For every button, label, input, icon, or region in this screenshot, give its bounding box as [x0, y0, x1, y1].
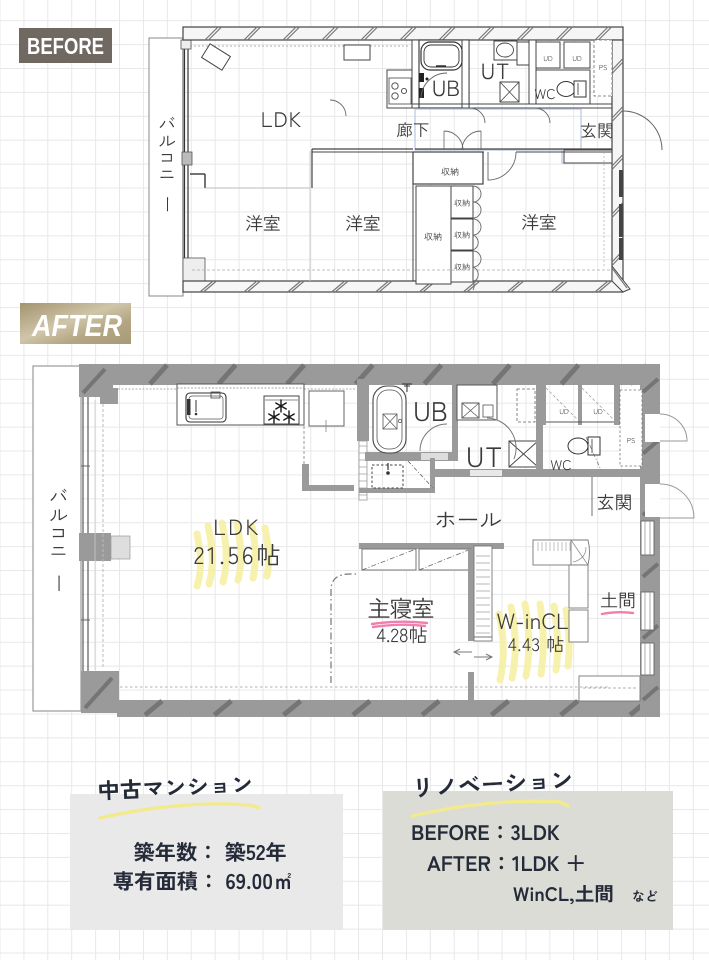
svg-text:AFTER: AFTER: [31, 308, 122, 343]
svg-text:BEFORE: BEFORE: [27, 33, 104, 59]
